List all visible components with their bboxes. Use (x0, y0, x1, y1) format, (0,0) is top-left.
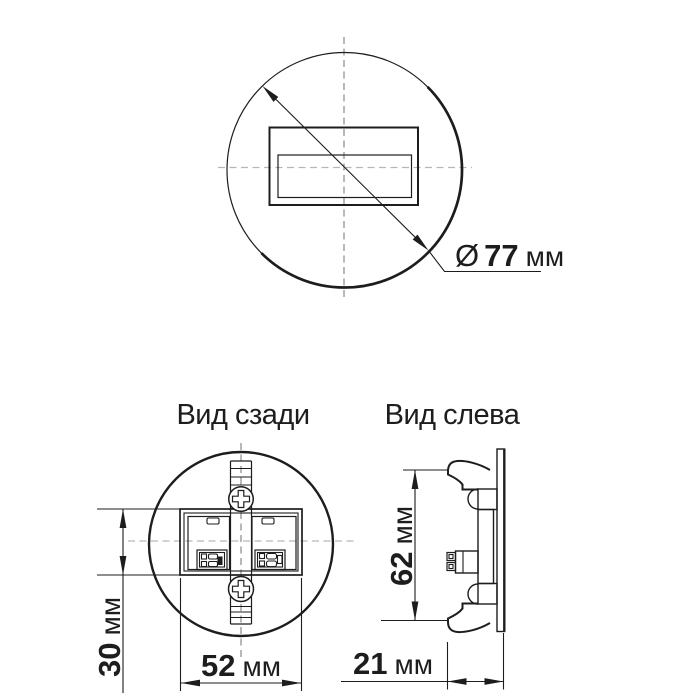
dim-arrow (412, 470, 419, 489)
front-window-glass (278, 155, 412, 198)
dimension-62mm: 62мм (381, 470, 448, 621)
dim-arrow (181, 680, 200, 687)
screw-boss-bump-bottom (468, 584, 478, 604)
screw-boss-bump-top (468, 489, 478, 509)
vent-slot-left (207, 518, 219, 524)
dimension-21mm: 21мм (341, 633, 504, 690)
screw-top (229, 487, 254, 512)
front-view: Ø77мм (218, 37, 564, 298)
dim-arrow (282, 680, 301, 687)
technical-drawing: Ø77мм Вид сзади (0, 0, 700, 700)
spring-clip-top (448, 461, 490, 490)
vent-slot-right (262, 518, 274, 524)
terminal-block-right (255, 550, 285, 570)
dim-arrow (448, 678, 467, 685)
dim-label-21mm: 21мм (353, 646, 433, 681)
front-bezel-circle-shade (261, 87, 462, 288)
diameter-label: Ø77мм (455, 238, 564, 273)
terminal-block-left (197, 550, 227, 570)
dimension-30mm: 30мм (92, 509, 180, 693)
diameter-dimension-line (266, 90, 426, 248)
spring-clip-bottom (448, 604, 490, 633)
extension-lines (97, 509, 180, 575)
screw-bottom (229, 577, 254, 602)
dim-arrow (485, 678, 504, 685)
body-middle (478, 510, 494, 584)
dim-label-62mm: 62мм (384, 506, 419, 586)
dim-arrow (120, 509, 127, 528)
back-view: Вид сзади (92, 399, 354, 693)
dim-arrow (120, 556, 127, 575)
dim-arrow (413, 235, 431, 253)
dim-arrow (260, 84, 278, 102)
connector-pin (447, 563, 456, 571)
dim-arrow (412, 602, 419, 621)
boss-top (478, 489, 497, 510)
connector-pin (447, 553, 456, 561)
wire-connector (447, 551, 478, 573)
boss-bottom (478, 584, 497, 605)
left-view-title: Вид слева (385, 399, 521, 431)
back-view-title: Вид сзади (176, 399, 309, 431)
left-view: Вид слева 62мм (341, 399, 521, 690)
dim-label-30mm: 30мм (92, 597, 127, 677)
